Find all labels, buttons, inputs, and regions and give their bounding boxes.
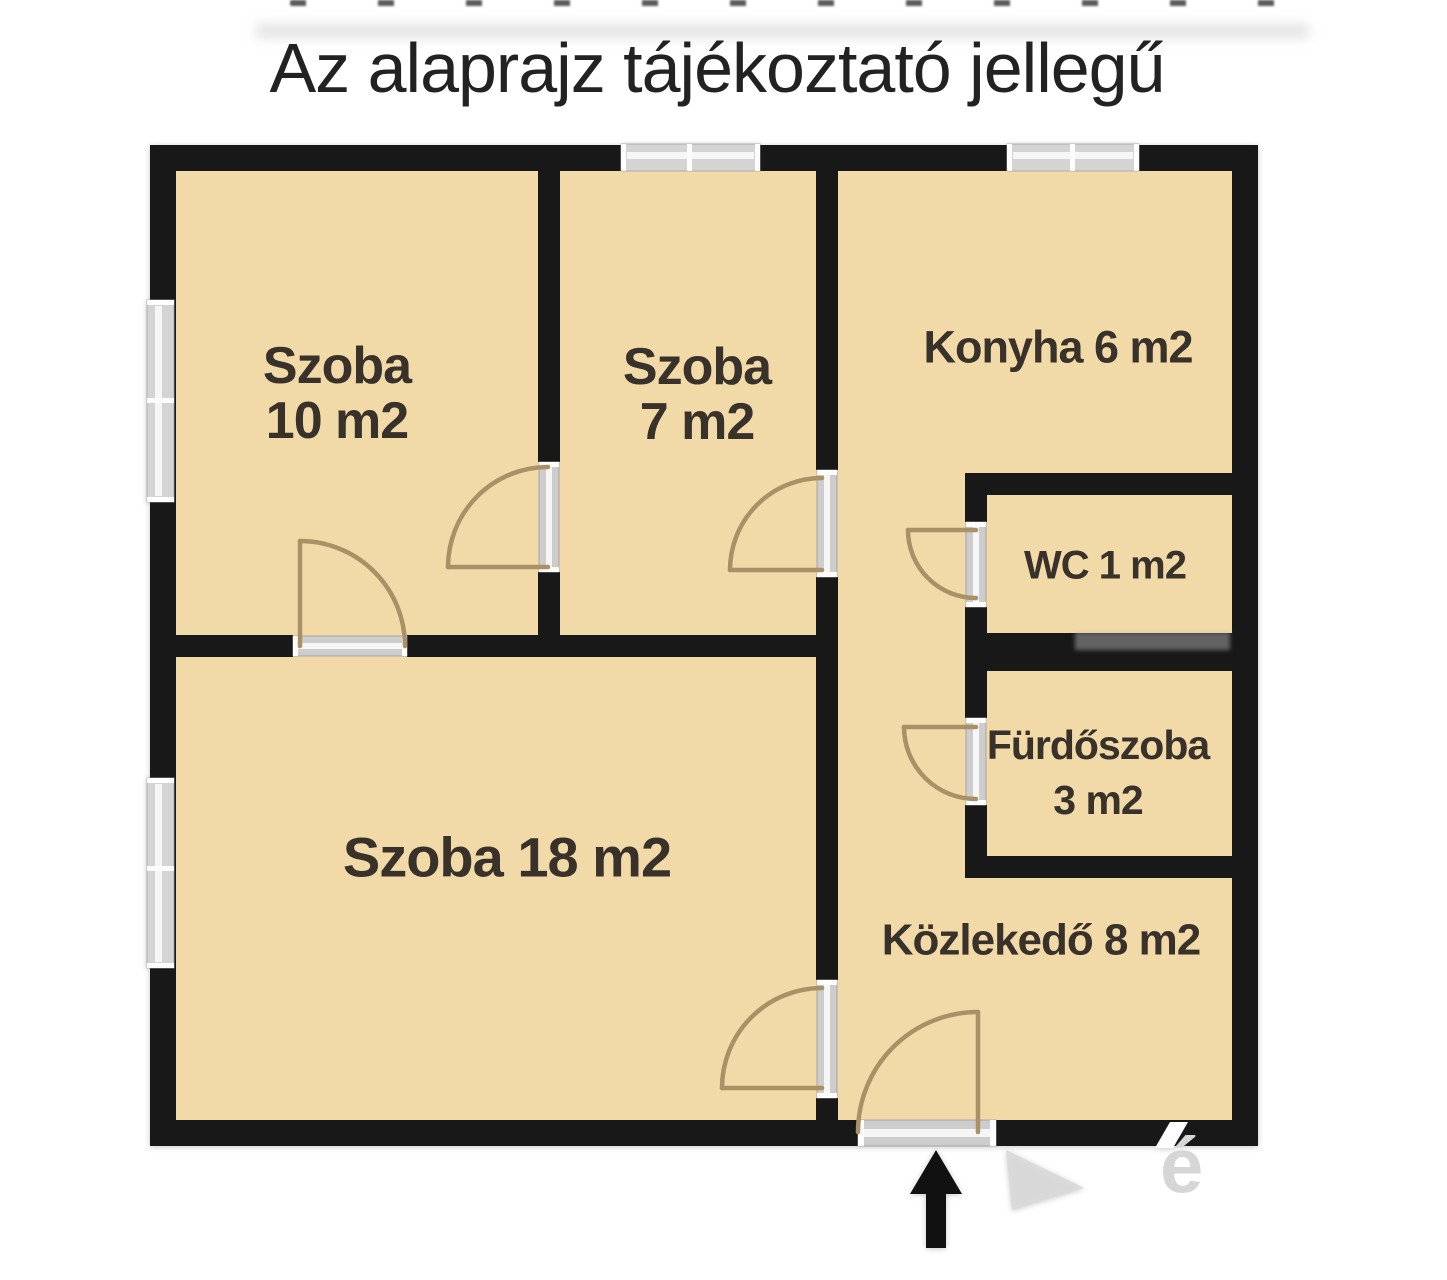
wall-central-stub: [816, 1098, 838, 1120]
window-top-konyha: [1007, 144, 1139, 171]
wall-furdoszoba-bottom: [965, 856, 1232, 878]
watermark-letter: é: [1160, 1126, 1203, 1204]
wall-szoba10-szoba7-upper: [538, 171, 560, 462]
wall-wc-left-lower: [965, 607, 987, 633]
watermark-triangle: [1006, 1150, 1084, 1210]
window-top-szoba7: [621, 144, 760, 171]
wall-furdoszoba-left-lower: [965, 805, 987, 856]
wall-central-upper: [816, 171, 838, 470]
wall-outer-right: [1232, 145, 1258, 1146]
floor-plan-page: Az alaprajz tájékoztató jellegű: [0, 0, 1447, 1280]
wall-szoba18-top-right: [407, 635, 838, 657]
window-left-szoba18: [147, 778, 174, 968]
wall-szoba18-top-left: [176, 635, 293, 657]
watermark-smudge: [1075, 632, 1230, 650]
entrance-arrow-icon: [910, 1150, 962, 1248]
wall-wc-top: [965, 473, 1232, 495]
window-left-szoba10: [147, 300, 174, 502]
wall-wc-left-upper: [965, 495, 987, 522]
wall-outer-left: [150, 145, 176, 1146]
wall-outer-bottom: [150, 1120, 1258, 1146]
wall-furdoszoba-left-upper: [965, 671, 987, 718]
